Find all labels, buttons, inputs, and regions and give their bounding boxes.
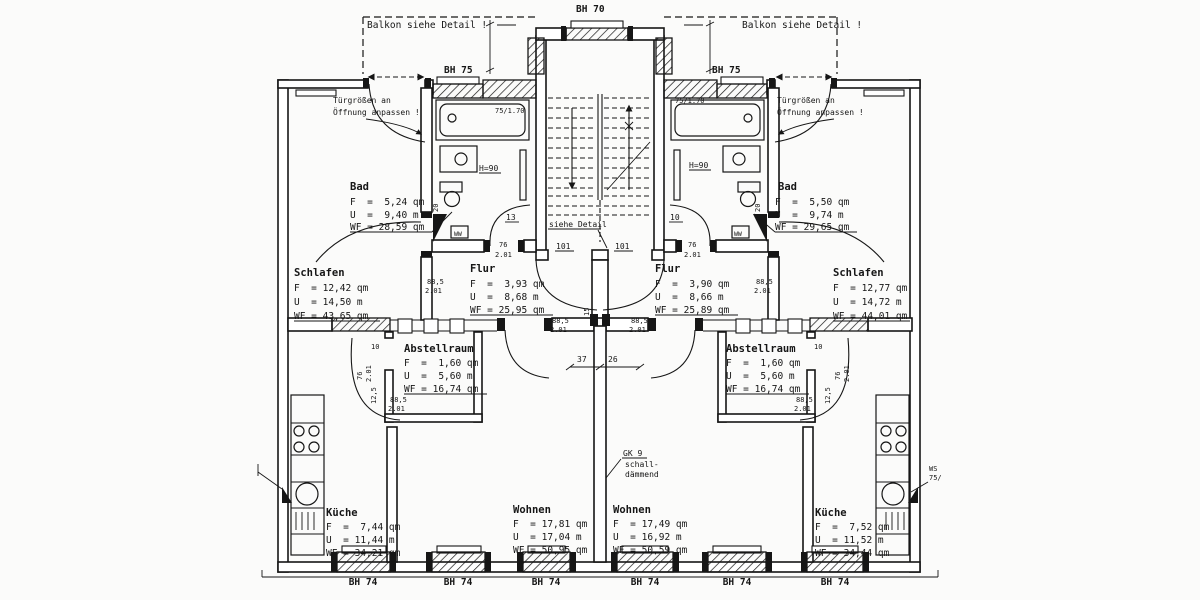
- room-label-flur-right: Flur F = 3,90 qm U = 8,66 m WF = 25,89 q…: [655, 263, 738, 316]
- interior-walls-left: [288, 88, 594, 562]
- floor-plan-drawing: BH 70 BH 75 BH 75 BH 74 BH 74 BH 74 BH 7…: [0, 0, 1200, 600]
- svg-text:WF = 50,59 qm: WF = 50,59 qm: [613, 545, 688, 556]
- room-label-bad-left: Bad F = 5,24 qm U = 9,40 m WF = 28,59 qm: [350, 181, 432, 233]
- window-bh75-left: [433, 77, 483, 98]
- svg-text:F = 1,60 qm: F = 1,60 qm: [726, 358, 801, 369]
- svg-text:WF = 25,89 qm: WF = 25,89 qm: [655, 305, 730, 316]
- balcony-note-left: Balkon siehe Detail !: [367, 20, 487, 31]
- washbasin-icon: [440, 146, 477, 172]
- window-label-bh74-1: BH 74: [349, 577, 378, 588]
- dim-20-right: 20: [754, 204, 762, 212]
- ws-note-1: WS: [929, 465, 937, 473]
- dishwasher-icon: [296, 512, 314, 530]
- radiator-icon: [520, 150, 526, 200]
- interior-walls-right: [606, 88, 912, 562]
- window-label-bh74-4: BH 74: [631, 577, 660, 588]
- room-label-wohnen-left: Wohnen F = 17,81 qm U = 17,04 m WF = 50,…: [513, 504, 588, 556]
- kitchen-counter: [291, 395, 324, 555]
- ww-label-left: WW: [454, 230, 462, 238]
- svg-text:Schlafen: Schlafen: [294, 267, 345, 279]
- svg-text:F = 7,52 qm: F = 7,52 qm: [815, 522, 890, 533]
- dim-125-right: 12,5: [824, 387, 832, 404]
- dim-10-abstell-right: 10: [814, 343, 822, 351]
- window-label-bh75-right: BH 75: [712, 65, 741, 76]
- door-note-right-1: Türgrößen an: [777, 96, 835, 105]
- dim-10-abstell-left: 10: [371, 343, 379, 351]
- door-dim-885-abstell-left: 88,5: [390, 396, 407, 404]
- toilet-icon: [440, 182, 462, 192]
- svg-text:F = 17,81 qm: F = 17,81 qm: [513, 519, 588, 530]
- ww-label-right: WW: [734, 230, 742, 238]
- svg-text:F = 5,50 qm: F = 5,50 qm: [775, 197, 850, 208]
- duct-icon: [433, 214, 447, 242]
- svg-text:WF = 44,01 qm: WF = 44,01 qm: [833, 311, 908, 322]
- svg-text:WF = 16,74 qm: WF = 16,74 qm: [404, 384, 479, 395]
- door-dim-885-abstell-right: 88,5: [796, 396, 813, 404]
- door-dim-201b-abstell-right: 2.01: [794, 405, 811, 413]
- door-note-left-2: Öffnung anpassen !: [333, 107, 420, 117]
- svg-text:WF = 16,74 qm: WF = 16,74 qm: [726, 384, 801, 395]
- door-dim-885-schlafen-right: 88,5: [756, 278, 773, 286]
- svg-text:Küche: Küche: [326, 507, 358, 519]
- door-dim-75-170-right: 75/1.70: [675, 97, 705, 105]
- door-dim-201-abstell-right: 2.01: [843, 365, 851, 382]
- window-label-bh74-6: BH 74: [821, 577, 850, 588]
- dim-15: 15: [583, 308, 591, 316]
- room-label-schlafen-left: Schlafen F = 12,42 qm U = 14,50 m WF = 4…: [294, 267, 380, 322]
- door-dim-885-flur-right: 88,5: [631, 317, 648, 325]
- door-dim-201-right: 2.01: [684, 251, 701, 259]
- room-label-wohnen-right: Wohnen F = 17,49 qm U = 16,92 m WF = 50,…: [613, 504, 688, 556]
- svg-text:U = 9,74 m: U = 9,74 m: [775, 210, 844, 221]
- door-dim-885-flur-left: 88,5: [552, 317, 569, 325]
- room-label-bad-right: Bad F = 5,50 qm U = 9,74 m WF = 29,65 qm: [775, 181, 857, 233]
- duct-icon: [753, 214, 767, 242]
- svg-text:U = 17,04 m: U = 17,04 m: [513, 532, 582, 543]
- svg-text:WF = 34,21 qm: WF = 34,21 qm: [326, 548, 401, 559]
- svg-text:U = 11,44 m: U = 11,44 m: [326, 535, 395, 546]
- window-label-bh75-left: BH 75: [444, 65, 473, 76]
- svg-text:Abstellraum: Abstellraum: [404, 343, 474, 355]
- svg-text:Wohnen: Wohnen: [513, 504, 551, 516]
- dim-125-left: 12,5: [370, 387, 378, 404]
- sink-icon: [882, 483, 904, 505]
- window-bh75-right: [717, 77, 767, 98]
- door-dim-101-right: 101: [615, 242, 630, 251]
- gk9-note-2: schall-: [625, 460, 659, 469]
- dim-37: 37: [577, 355, 587, 364]
- dim-20-left: 20: [432, 204, 440, 212]
- window-bh70: [566, 28, 628, 40]
- door-note-right-2: Öffnung anpassen !: [777, 107, 864, 117]
- toilet-icon: [738, 182, 760, 192]
- door-dim-75-170-left: 75/1.70: [495, 107, 525, 115]
- door-dim-201b-abstell-left: 2.01: [388, 405, 405, 413]
- door-dim-201-flur-left: 2.01: [550, 326, 567, 334]
- svg-text:Wohnen: Wohnen: [613, 504, 651, 516]
- window-label-bh74-2: BH 74: [444, 577, 473, 588]
- basin-height-right: H=90: [689, 161, 708, 170]
- svg-text:WF = 25,95 qm: WF = 25,95 qm: [470, 305, 545, 316]
- svg-text:Küche: Küche: [815, 507, 847, 519]
- floorplan-page: BH 70 BH 75 BH 75 BH 74 BH 74 BH 74 BH 7…: [0, 0, 1200, 600]
- bathtub-icon: [671, 100, 764, 140]
- svg-text:U = 14,72 m: U = 14,72 m: [833, 297, 902, 308]
- svg-text:F = 3,93 qm: F = 3,93 qm: [470, 279, 545, 290]
- door-dim-76-abstell-right: 76: [834, 372, 842, 380]
- dim-26: 26: [608, 355, 618, 364]
- svg-text:WF = 29,65 qm: WF = 29,65 qm: [775, 222, 850, 233]
- svg-text:F = 7,44 qm: F = 7,44 qm: [326, 522, 401, 533]
- svg-text:U = 8,68 m: U = 8,68 m: [470, 292, 539, 303]
- svg-text:Flur: Flur: [470, 263, 495, 275]
- radiator-icon: [674, 150, 680, 200]
- basin-height-left: H=90: [479, 164, 498, 173]
- kitchen-left-fixtures: [258, 395, 324, 555]
- svg-text:Abstellraum: Abstellraum: [726, 343, 796, 355]
- svg-text:Bad: Bad: [350, 181, 369, 193]
- svg-text:F = 5,24 qm: F = 5,24 qm: [350, 197, 425, 208]
- window-label-bh74-3: BH 74: [532, 577, 561, 588]
- door-dim-885-schlafen-left: 88,5: [427, 278, 444, 286]
- svg-text:Schlafen: Schlafen: [833, 267, 884, 279]
- door-dim-201-abstell-left: 2.01: [365, 365, 373, 382]
- balcony-note-right: Balkon siehe Detail !: [742, 20, 862, 31]
- room-label-schlafen-right: Schlafen F = 12,77 qm U = 14,72 m WF = 4…: [833, 267, 910, 322]
- svg-text:U = 11,52 m: U = 11,52 m: [815, 535, 884, 546]
- svg-text:U = 16,92 m: U = 16,92 m: [613, 532, 682, 543]
- gk9-note-3: dämmend: [625, 470, 659, 479]
- svg-text:F = 1,60 qm: F = 1,60 qm: [404, 358, 479, 369]
- party-wall: [590, 260, 610, 562]
- svg-text:U = 5,60 m: U = 5,60 m: [404, 371, 473, 382]
- window-label-bh70: BH 70: [576, 4, 605, 15]
- svg-text:F = 12,42 qm: F = 12,42 qm: [294, 283, 369, 294]
- door-note-left-1: Türgrößen an: [333, 96, 391, 105]
- door-dim-201-flur-right: 2.01: [629, 326, 646, 334]
- room-label-kueche-right: Küche F = 7,52 qm U = 11,52 m WF = 34,44…: [815, 507, 890, 559]
- room-label-flur-left: Flur F = 3,93 qm U = 8,68 m WF = 25,95 q…: [470, 263, 553, 316]
- door-dim-201-left: 2.01: [495, 251, 512, 259]
- svg-text:U = 5,60 m: U = 5,60 m: [726, 371, 795, 382]
- stair-note: siehe Detail: [549, 220, 607, 229]
- svg-text:WF = 43,65 qm: WF = 43,65 qm: [294, 311, 369, 322]
- svg-text:Flur: Flur: [655, 263, 680, 275]
- svg-text:F = 12,77 qm: F = 12,77 qm: [833, 283, 908, 294]
- window-label-bh74-5: BH 74: [723, 577, 752, 588]
- room-label-abstellraum-right: Abstellraum F = 1,60 qm U = 5,60 m WF = …: [726, 343, 809, 395]
- washbasin-icon: [723, 146, 760, 172]
- bathtub-icon: [436, 100, 529, 140]
- door-dim-201-schlafen-left: 2.01: [425, 287, 442, 295]
- bathroom-right-fixtures: [671, 100, 767, 242]
- svg-text:U = 14,50 m: U = 14,50 m: [294, 297, 363, 308]
- dim-10-bath-right: 10: [670, 213, 680, 222]
- svg-text:U = 8,66 m: U = 8,66 m: [655, 292, 724, 303]
- stove-icon: [294, 426, 304, 436]
- svg-text:Bad: Bad: [778, 181, 797, 193]
- ws-note-2: 75/: [929, 474, 942, 482]
- svg-text:WF = 34,44 qm: WF = 34,44 qm: [815, 548, 890, 559]
- door-dim-76-left: 76: [499, 241, 507, 249]
- door-dim-76-abstell-left: 76: [356, 372, 364, 380]
- gk9-note-1: GK 9: [623, 449, 642, 458]
- svg-text:WF = 50,95 qm: WF = 50,95 qm: [513, 545, 588, 556]
- dim-13: 13: [506, 213, 516, 222]
- svg-text:WF = 28,59 qm: WF = 28,59 qm: [350, 222, 425, 233]
- sink-icon: [296, 483, 318, 505]
- door-dim-201-schlafen-right: 2.01: [754, 287, 771, 295]
- svg-text:F = 17,49 qm: F = 17,49 qm: [613, 519, 688, 530]
- svg-text:F = 3,90 qm: F = 3,90 qm: [655, 279, 730, 290]
- door-dim-101-left: 101: [556, 242, 571, 251]
- stove-icon: [881, 426, 891, 436]
- door-dim-76-right: 76: [688, 241, 696, 249]
- svg-text:U = 9,40 m: U = 9,40 m: [350, 210, 419, 221]
